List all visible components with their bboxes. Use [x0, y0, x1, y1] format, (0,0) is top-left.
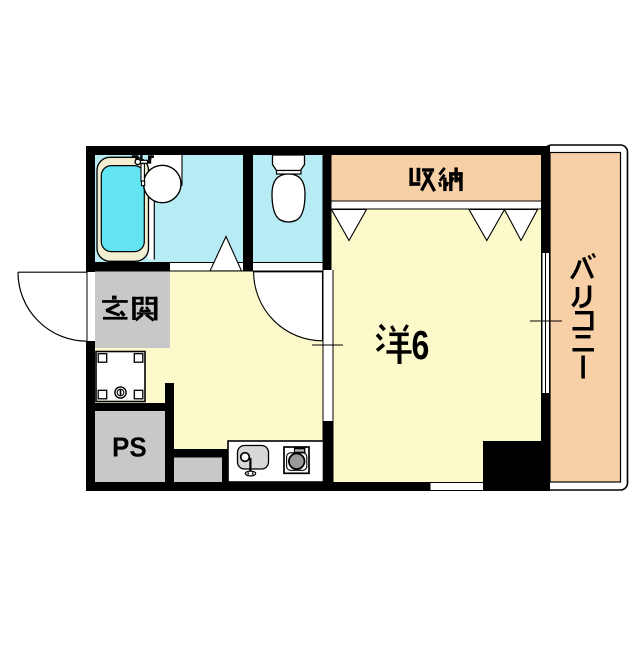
svg-text:PS: PS	[112, 431, 147, 462]
svg-text:6: 6	[412, 322, 430, 368]
